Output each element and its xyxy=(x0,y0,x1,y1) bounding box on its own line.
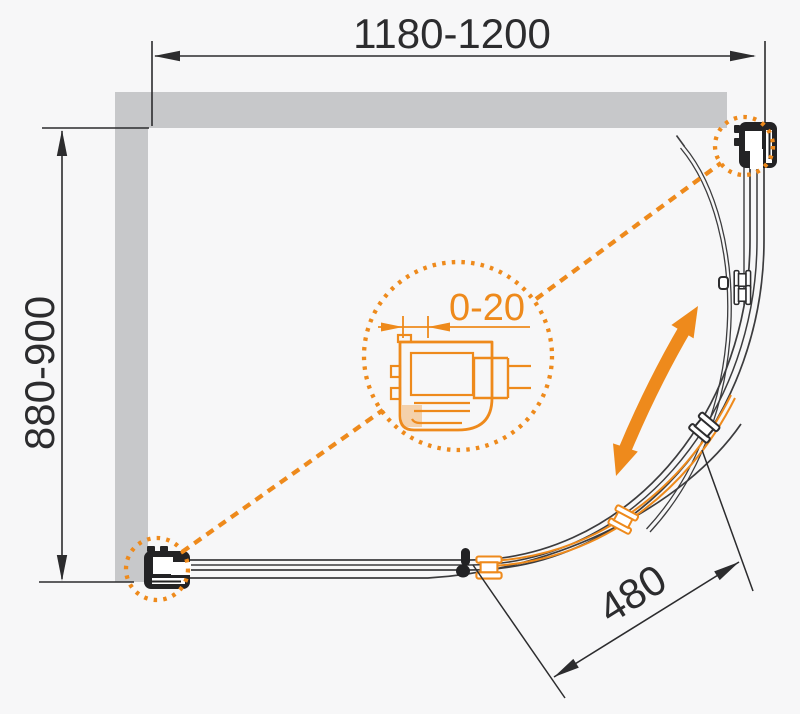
sliding-door-highlight xyxy=(488,395,735,566)
door-handle-knob xyxy=(456,565,470,578)
depth-arrowhead-top xyxy=(57,130,67,156)
profile-nub-top xyxy=(398,335,411,342)
callout-leader-top xyxy=(536,163,721,299)
depth-dimension-label: 880-900 xyxy=(16,296,63,450)
wall-profile-top xyxy=(734,122,777,169)
door-orange-edge-2 xyxy=(488,395,731,561)
callout-leader-bottom xyxy=(182,410,383,552)
door-handle xyxy=(456,548,470,578)
walls xyxy=(115,92,727,582)
dimension-entry: 480 xyxy=(473,450,753,698)
door-handle-bar xyxy=(461,548,470,566)
width-arrowhead-left xyxy=(154,51,180,61)
door-knob xyxy=(719,277,728,289)
entry-dimension-label: 480 xyxy=(590,555,674,632)
slide-arrow-shaft xyxy=(624,327,686,452)
profile-glass-lines xyxy=(508,366,531,388)
profile-hatch xyxy=(402,405,422,427)
wall-top xyxy=(115,92,727,128)
width-dimension-label: 1180-1200 xyxy=(353,10,551,57)
adjust-arrow-left xyxy=(381,323,403,332)
adjust-label: 0-20 xyxy=(449,287,525,329)
profile-section xyxy=(391,335,531,430)
profile-detail: 0-20 xyxy=(378,287,531,430)
shower-enclosure-diagram: 1180-1200 880-900 xyxy=(0,0,800,714)
door-open-tip xyxy=(677,136,685,147)
page: { "labels": { "width": "1180-1200", "dep… xyxy=(0,0,800,714)
entry-arrowhead-right xyxy=(714,558,742,581)
rail-line-outer xyxy=(188,166,764,570)
entry-arrowhead-left xyxy=(551,659,579,682)
width-arrowhead-right xyxy=(730,51,756,61)
profile-inner xyxy=(411,353,473,395)
adjust-arrow-right xyxy=(428,323,450,332)
wall-left xyxy=(115,92,148,582)
entry-extension-left xyxy=(473,565,565,698)
roller-top-2 xyxy=(734,286,750,305)
slide-direction-arrow xyxy=(613,306,698,476)
depth-arrowhead-bottom xyxy=(57,555,67,581)
slide-arrow-head-down xyxy=(613,443,638,476)
door-rail-curve xyxy=(188,166,764,570)
